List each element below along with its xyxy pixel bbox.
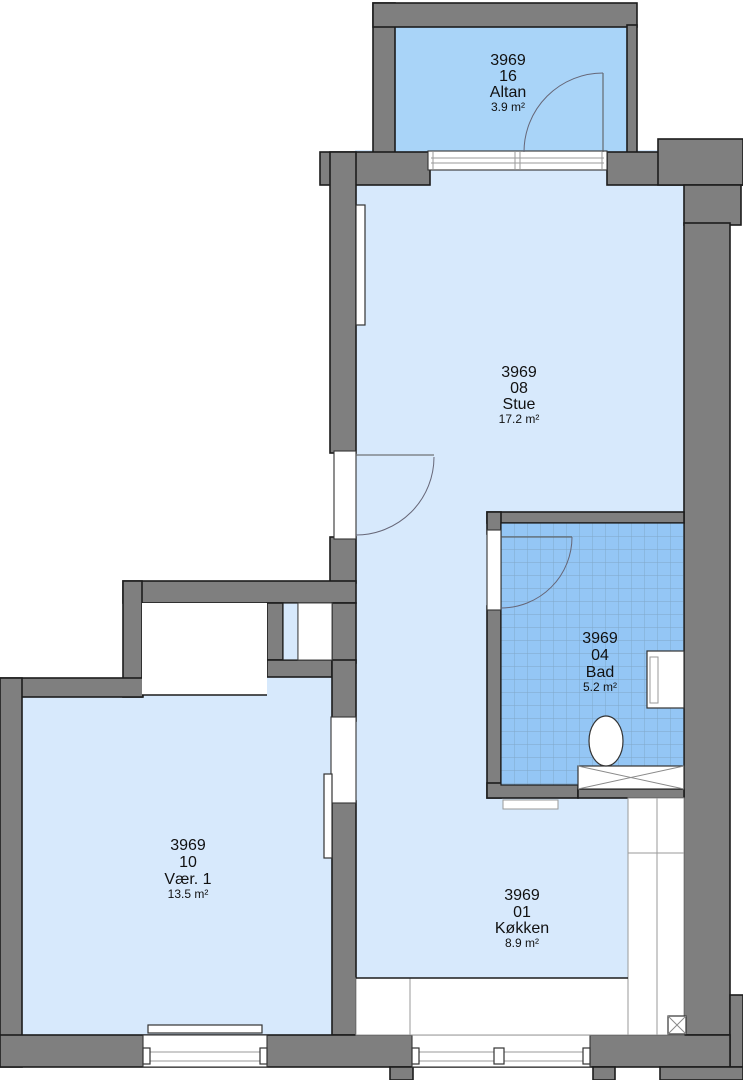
koekken-counter-east xyxy=(628,798,684,1035)
wall-corridor-west xyxy=(332,660,356,721)
koekken-unit: 01 xyxy=(513,904,531,921)
wall-top-right-upper xyxy=(658,139,743,185)
bad-area: 5.2 m² xyxy=(583,680,617,694)
ventilation-shaft-symbol xyxy=(668,1016,686,1034)
bad-number: 3969 xyxy=(582,630,618,647)
bad-unit: 04 xyxy=(591,647,609,664)
shaft-niche xyxy=(298,603,332,660)
wall-stue-west-below-door xyxy=(330,537,356,583)
wall-bath-top xyxy=(487,512,684,523)
koekken-shelf xyxy=(503,800,558,809)
sink-vanity xyxy=(647,651,684,708)
floorplan-page: 3969 16 Altan 3.9 m² 3969 08 Stue 17.2 m… xyxy=(0,0,743,1080)
stue-number: 3969 xyxy=(501,364,537,381)
entrance-door-frame xyxy=(334,451,356,539)
vaer1-number: 3969 xyxy=(170,837,206,854)
bath-door-frame xyxy=(487,530,501,610)
altan-unit: 16 xyxy=(499,68,517,85)
wall-shaft-bottom xyxy=(267,660,332,677)
shaft-window-strip xyxy=(283,603,298,660)
koekken-window xyxy=(412,1035,590,1067)
wall-corridor-west-lower xyxy=(332,801,356,1035)
altan-name: Altan xyxy=(490,84,526,101)
stue-unit: 08 xyxy=(510,380,528,397)
wall-bottom xyxy=(0,1035,730,1067)
stue-name: Stue xyxy=(503,396,536,413)
wall-lightwell-top xyxy=(123,581,356,603)
wall-east-upper xyxy=(684,185,741,225)
koekken-number: 3969 xyxy=(504,887,540,904)
koekken-counter-south xyxy=(356,978,628,1035)
outside-pocket xyxy=(142,603,267,695)
bad-name: Bad xyxy=(586,664,614,681)
koekken-name: Køkken xyxy=(495,920,549,937)
floor-vaer1-extra xyxy=(267,677,332,697)
wall-bottom-tab-right xyxy=(660,1067,743,1080)
wall-bath-bottom-right xyxy=(578,789,684,798)
wall-corridor-west-mid xyxy=(332,603,356,663)
wall-bottom-tab-left xyxy=(390,1067,413,1080)
vaer1-door-leaf xyxy=(324,774,332,858)
wall-west xyxy=(0,678,22,1067)
floor-koekken xyxy=(355,798,628,978)
wall-balcony-right xyxy=(627,25,637,153)
stue-area: 17.2 m² xyxy=(499,412,540,426)
wall-bath-west-lower xyxy=(487,606,501,798)
vaer1-radiator xyxy=(148,1025,262,1033)
floorplan-drawing: 3969 16 Altan 3.9 m² 3969 08 Stue 17.2 m… xyxy=(0,0,743,1080)
vaer1-name: Vær. 1 xyxy=(164,871,211,888)
altan-area: 3.9 m² xyxy=(491,100,525,114)
vaer1-unit: 10 xyxy=(179,854,197,871)
balcony-band-frame xyxy=(428,151,607,170)
altan-number: 3969 xyxy=(490,52,526,69)
wall-stue-west xyxy=(330,152,356,453)
vaer1-area: 13.5 m² xyxy=(168,887,209,901)
wall-east-bottom-step xyxy=(730,995,743,1067)
vaer1-window xyxy=(143,1035,267,1067)
wall-balcony-top xyxy=(373,3,637,27)
vaer1-door-frame xyxy=(331,717,356,803)
wall-shaft-left xyxy=(267,603,283,660)
toilet xyxy=(589,716,623,766)
wall-east xyxy=(684,223,730,1035)
wall-bottom-tab-mid xyxy=(593,1067,615,1080)
shower-unit xyxy=(578,766,684,789)
koekken-area: 8.9 m² xyxy=(505,936,539,950)
stue-radiator xyxy=(356,205,365,325)
floor-vaer1 xyxy=(22,695,332,1035)
bathroom xyxy=(487,523,684,789)
